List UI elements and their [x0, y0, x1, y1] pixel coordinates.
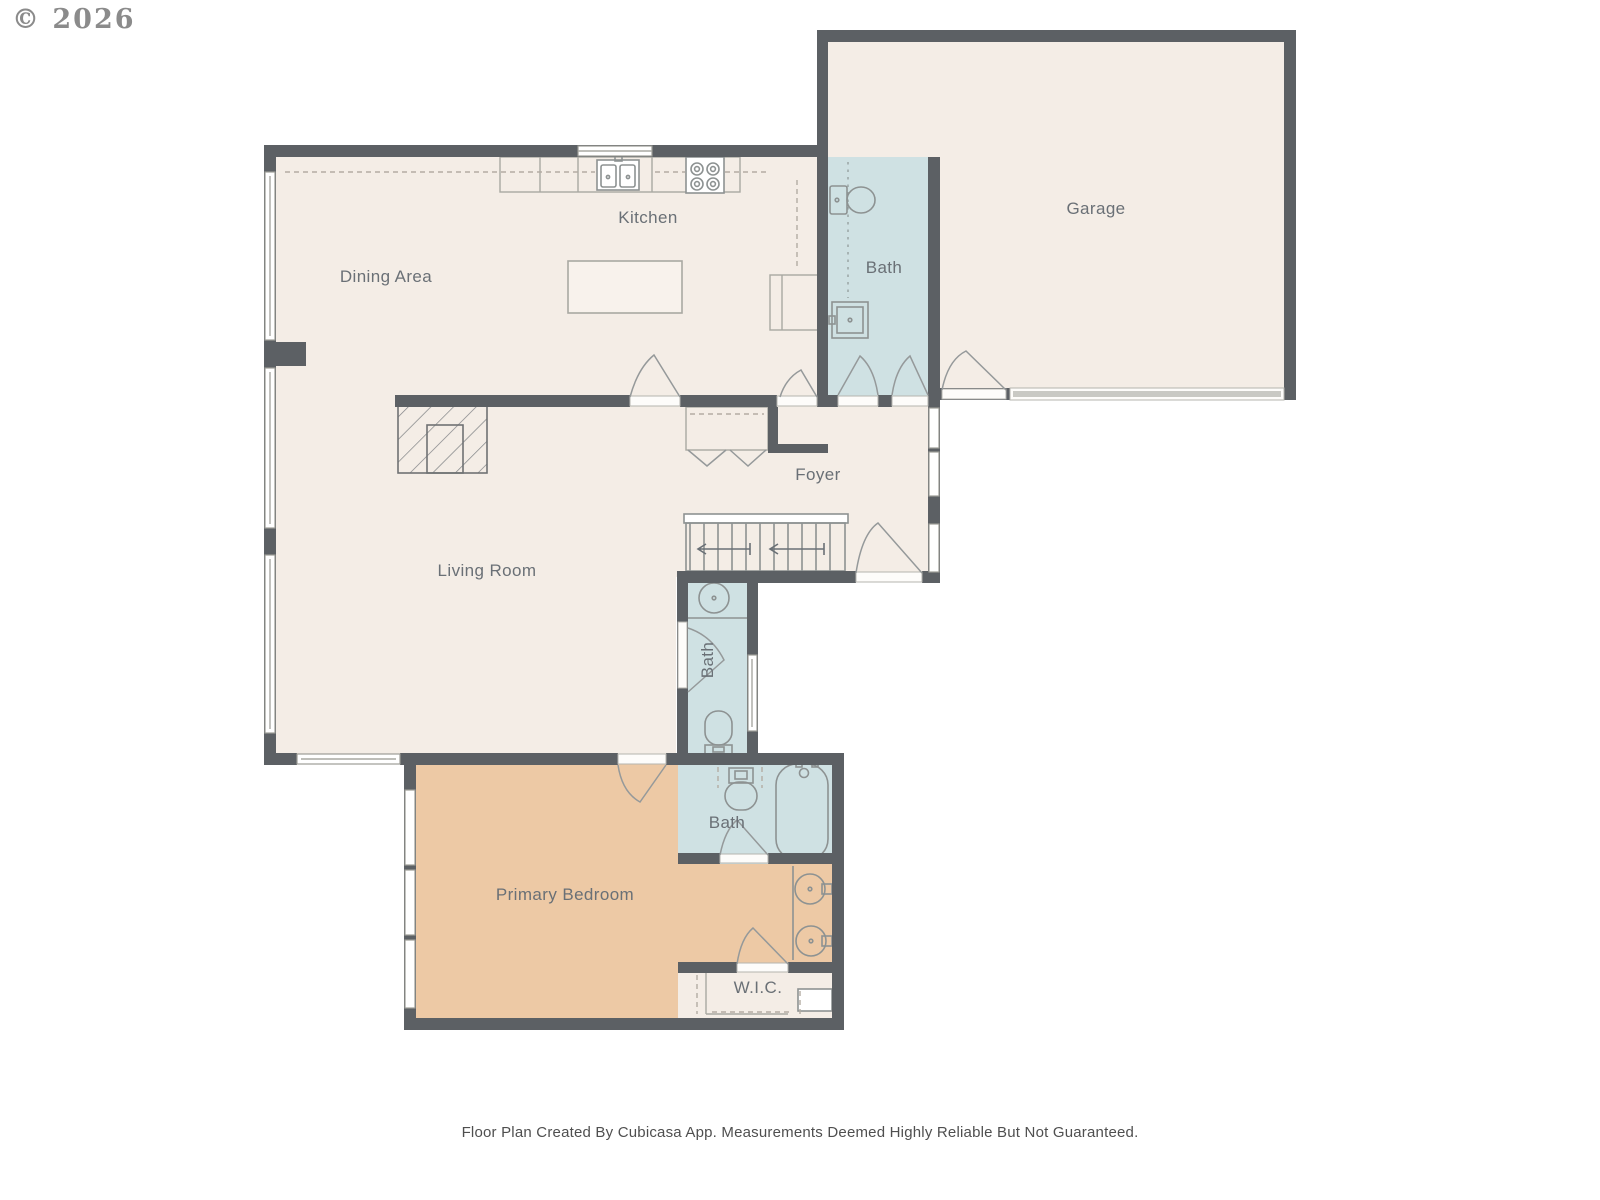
- garage-door: [1010, 388, 1284, 400]
- foyer-floor: [676, 401, 934, 577]
- room-floors: [270, 36, 1290, 1022]
- wic-label: W.I.C.: [734, 978, 783, 997]
- upper-bath-floor: [826, 157, 930, 397]
- vanity-floor: [678, 864, 836, 968]
- stove-fixture: [686, 157, 724, 193]
- window: [578, 146, 652, 156]
- primary-bath-floor: [678, 759, 836, 864]
- floor-plan-page: © 2026: [0, 0, 1600, 1200]
- stair-landing-rail: [684, 514, 848, 523]
- disclaimer-text: Floor Plan Created By Cubicasa App. Meas…: [0, 1124, 1600, 1141]
- kitchen-island: [568, 261, 682, 313]
- living-room-label: Living Room: [438, 561, 537, 580]
- primary-bath-label: Bath: [709, 813, 746, 832]
- foyer-label: Foyer: [795, 465, 840, 484]
- kitchen-sink-fixture: [597, 154, 639, 190]
- wic-shelf: [798, 989, 832, 1011]
- middle-bath-label: Bath: [698, 642, 717, 679]
- fireplace: [398, 400, 487, 473]
- kitchen-label: Kitchen: [618, 208, 678, 227]
- dining-area-label: Dining Area: [340, 267, 432, 286]
- garage-label: Garage: [1066, 199, 1125, 218]
- primary-bedroom-label: Primary Bedroom: [496, 885, 634, 904]
- upper-bath-label: Bath: [866, 258, 903, 277]
- middle-bath-floor: [688, 577, 747, 759]
- floor-plan-svg: Kitchen Dining Area Garage Bath Foyer Li…: [0, 0, 1600, 1200]
- pantry-wall: [768, 444, 828, 453]
